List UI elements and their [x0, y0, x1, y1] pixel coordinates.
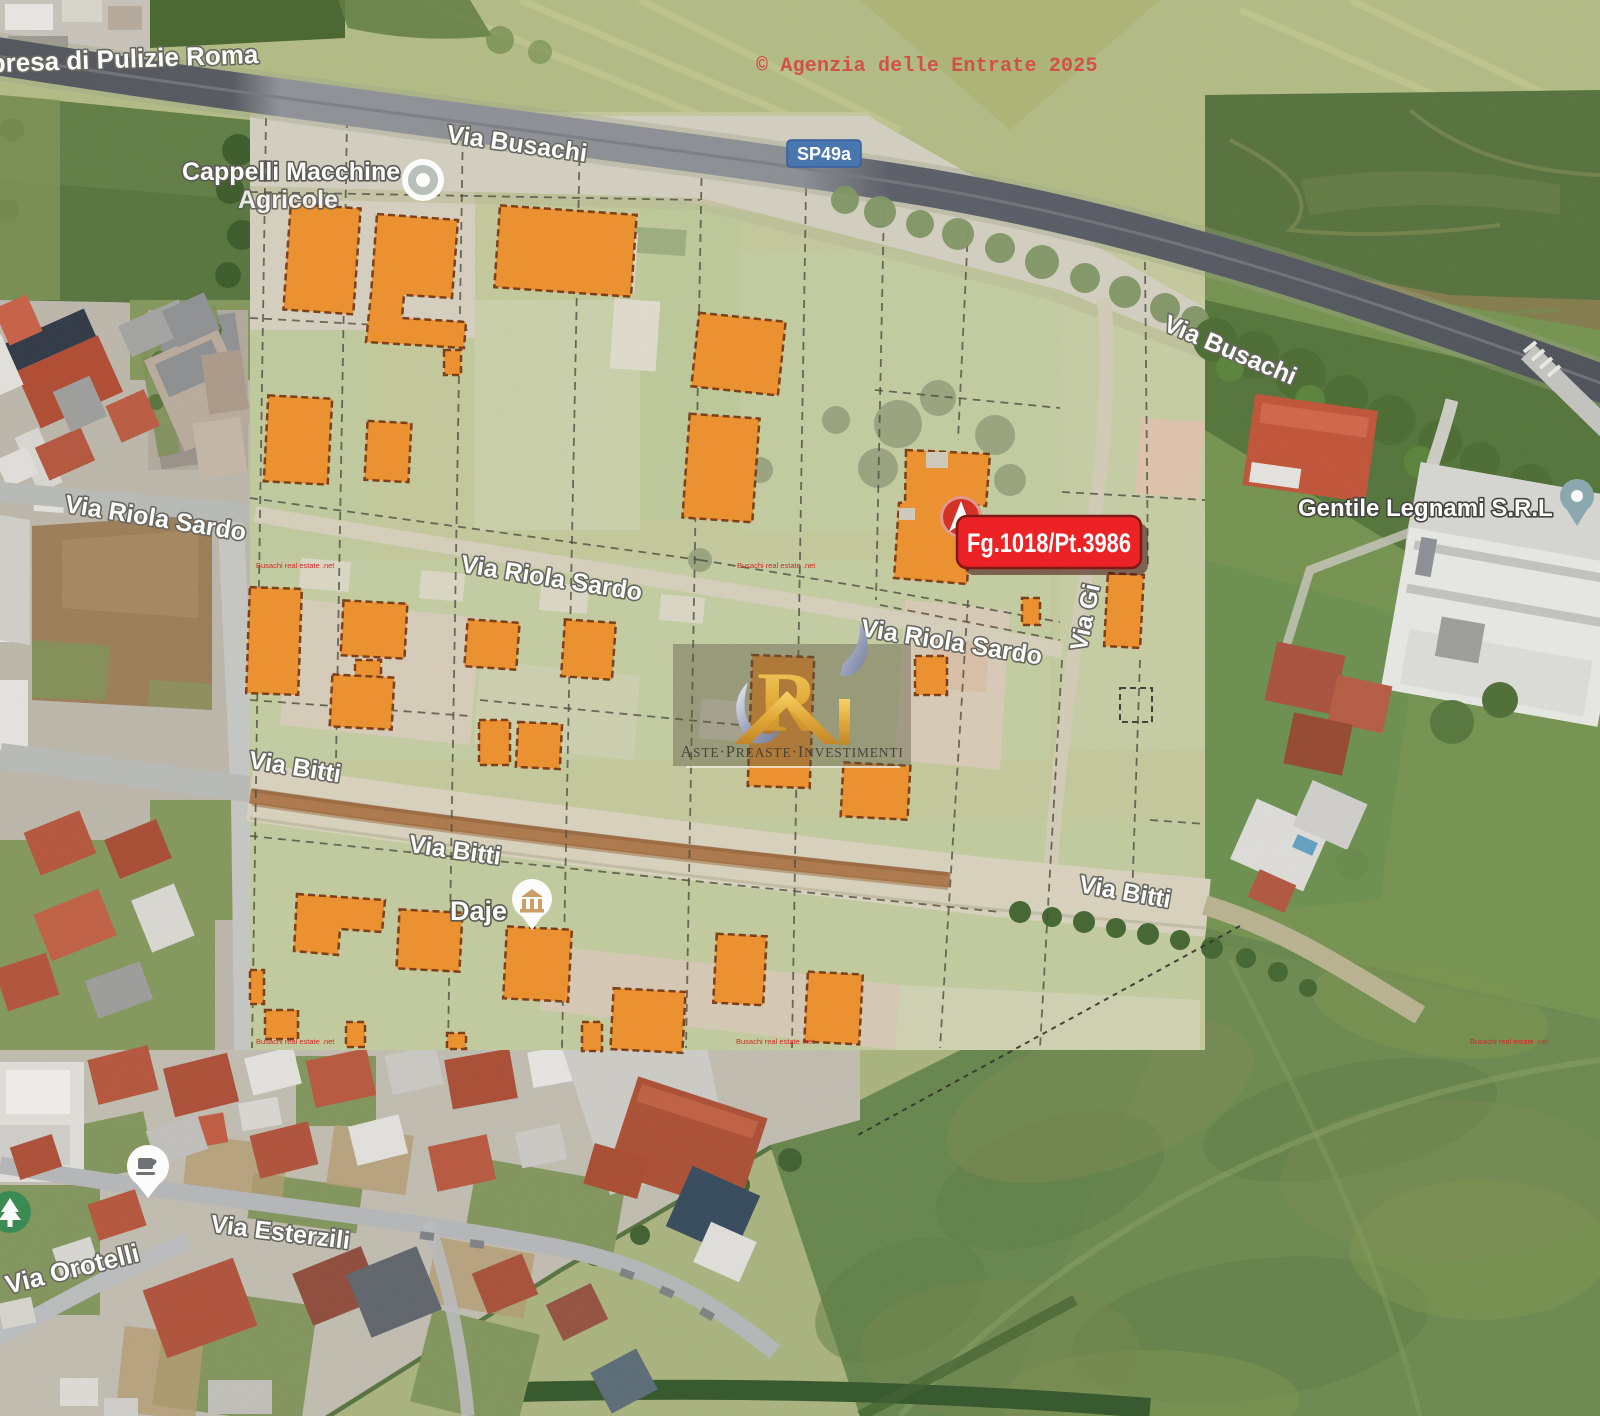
svg-text:Cappelli Macchine: Cappelli Macchine — [182, 158, 400, 186]
svg-text:Busachi real estate .net: Busachi real estate .net — [256, 561, 335, 570]
svg-text:Fg.1018/Pt.3986: Fg.1018/Pt.3986 — [967, 528, 1131, 558]
svg-text:Agricole: Agricole — [238, 186, 338, 214]
svg-text:ASTE·PREASTE·INVESTIMENTI: ASTE·PREASTE·INVESTIMENTI — [680, 742, 903, 761]
svg-text:Gentile Legnami S.R.L: Gentile Legnami S.R.L — [1298, 495, 1553, 522]
svg-text:Daje: Daje — [450, 896, 507, 926]
svg-text:© Agenzia delle Entrate 2025: © Agenzia delle Entrate 2025 — [756, 55, 1098, 78]
svg-text:Busachi real estate .net: Busachi real estate .net — [736, 1037, 815, 1046]
svg-text:SP49a: SP49a — [797, 144, 852, 164]
svg-text:Busachi real estate .net: Busachi real estate .net — [1470, 1037, 1549, 1046]
svg-text:Busachi real estate .net: Busachi real estate .net — [256, 1037, 335, 1046]
svg-text:Busachi real estate .net: Busachi real estate .net — [737, 561, 816, 570]
